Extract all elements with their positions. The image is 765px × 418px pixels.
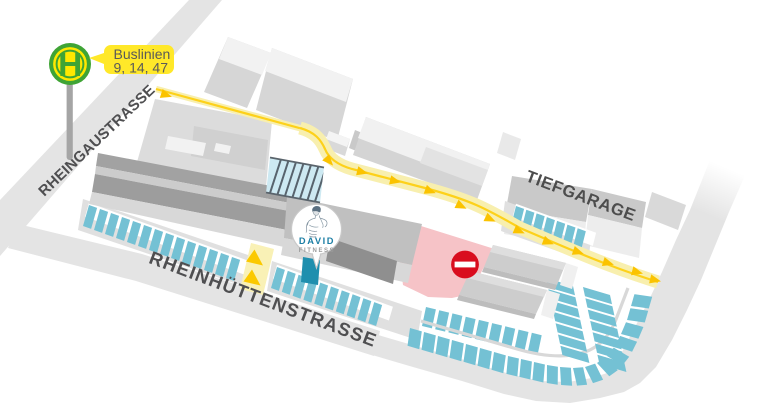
svg-text:FITNESS: FITNESS: [299, 248, 336, 254]
svg-text:H: H: [58, 47, 82, 84]
svg-text:9, 14, 47: 9, 14, 47: [114, 60, 169, 76]
svg-text:DAVID: DAVID: [299, 236, 335, 246]
